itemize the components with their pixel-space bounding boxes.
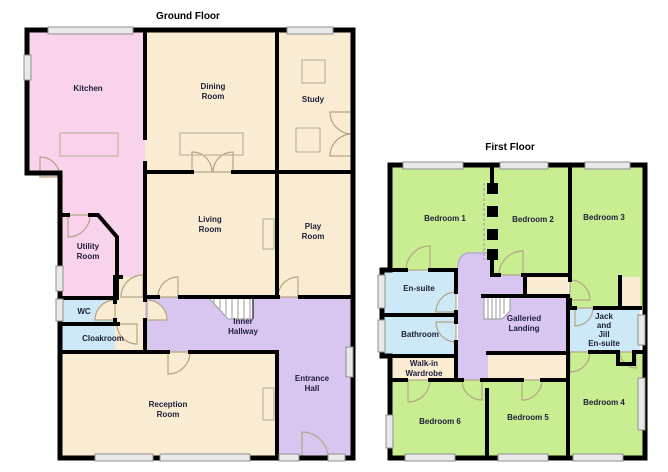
label-play-1: Play xyxy=(305,222,322,231)
label-jack-jill-3: Jill xyxy=(598,330,609,339)
label-entrance-2: Hall xyxy=(305,384,320,393)
jack-and-jill-window xyxy=(638,315,645,345)
label-inner-hallway-1: Inner xyxy=(233,317,253,326)
cupboard-bedroom-3 xyxy=(620,277,640,308)
label-bedroom-4: Bedroom 4 xyxy=(583,398,625,407)
label-reception-2: Room xyxy=(157,410,180,419)
first-floor-plan: First Floor xyxy=(378,142,645,461)
bedroom-1-window xyxy=(403,162,463,169)
label-jack-jill-4: En-suite xyxy=(588,339,620,348)
en-suite-window xyxy=(378,275,385,308)
room-living xyxy=(145,172,277,297)
label-dining-2: Room xyxy=(202,92,225,101)
label-study: Study xyxy=(302,95,325,104)
bedroom-6-window-bottom xyxy=(405,454,455,461)
bedroom-6-window-left xyxy=(386,415,393,448)
label-bedroom-6: Bedroom 6 xyxy=(419,417,461,426)
first-floor-title: First Floor xyxy=(485,142,535,153)
bedroom-4-window-bottom xyxy=(573,454,623,461)
label-jack-jill-2: and xyxy=(597,321,611,330)
label-galleried-1: Galleried xyxy=(507,314,541,323)
label-kitchen: Kitchen xyxy=(73,84,102,93)
wc-window xyxy=(56,299,63,321)
label-wardrobe-1: Walk-in xyxy=(410,359,438,368)
floorplan-svg: Ground Floor xyxy=(0,0,668,472)
ground-floor-title: Ground Floor xyxy=(156,11,220,22)
kitchen-window-top xyxy=(48,27,133,34)
label-reception-1: Reception xyxy=(149,400,188,409)
label-living-2: Room xyxy=(199,225,222,234)
bedroom-3-window xyxy=(585,162,630,169)
label-play-2: Room xyxy=(302,232,325,241)
label-dining-1: Dining xyxy=(201,82,226,91)
reception-window-2 xyxy=(160,454,250,461)
label-cloakroom: Cloakroom xyxy=(82,334,124,343)
wardrobe-strip xyxy=(488,353,568,380)
room-dining xyxy=(145,30,277,172)
floorplan-canvas: Ground Floor xyxy=(0,0,668,472)
utility-window xyxy=(56,266,63,291)
label-utility-2: Room xyxy=(77,252,100,261)
label-en-suite: En-suite xyxy=(403,284,435,293)
label-bedroom-2: Bedroom 2 xyxy=(512,215,554,224)
label-galleried-2: Landing xyxy=(508,324,539,333)
label-inner-hallway-2: Hallway xyxy=(228,327,258,336)
study-window-top xyxy=(287,27,333,34)
bedroom-4-window-right xyxy=(638,378,645,430)
label-bedroom-1: Bedroom 1 xyxy=(424,214,466,223)
cupboard-under-bedroom-2 xyxy=(525,277,568,296)
front-door-sidelight-right xyxy=(328,454,345,461)
wall-pier-3 xyxy=(487,229,498,240)
wall-pier-1 xyxy=(487,183,498,194)
label-bedroom-3: Bedroom 3 xyxy=(583,213,625,222)
ground-floor-plan: Ground Floor xyxy=(24,11,353,461)
wall-pier-2 xyxy=(487,206,498,217)
label-jack-jill-1: Jack xyxy=(595,312,613,321)
entrance-hall-window xyxy=(346,347,353,377)
kitchen-window-left xyxy=(24,55,31,80)
bathroom-window xyxy=(378,320,385,352)
bedroom-5-window xyxy=(498,454,548,461)
label-wc: WC xyxy=(77,307,91,316)
label-bedroom-5: Bedroom 5 xyxy=(507,413,549,422)
front-door-sidelight-left xyxy=(279,454,299,461)
label-living-1: Living xyxy=(198,215,222,224)
label-bathroom: Bathroom xyxy=(401,330,439,339)
label-wardrobe-2: Wardrobe xyxy=(405,369,443,378)
reception-window-1 xyxy=(95,454,153,461)
bedroom-2-window xyxy=(500,162,548,169)
label-entrance-1: Entrance xyxy=(295,374,330,383)
label-utility-1: Utility xyxy=(77,242,100,251)
